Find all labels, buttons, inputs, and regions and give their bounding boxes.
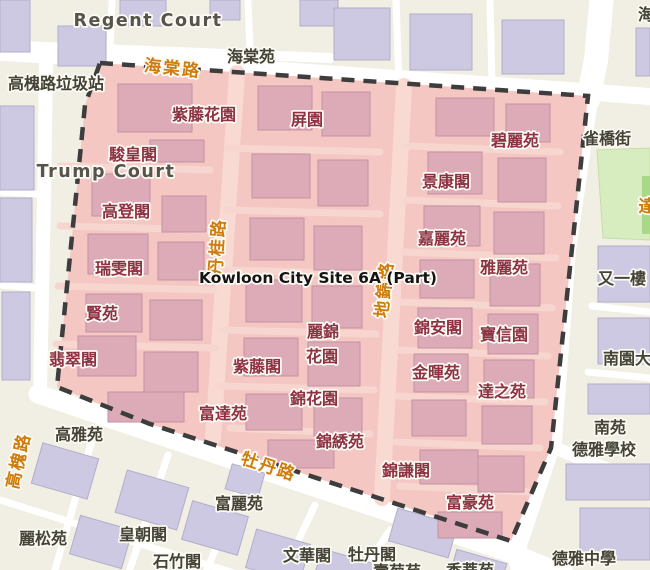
- site-building-label: 雅麗苑: [479, 258, 528, 277]
- label-shek-chuk-court: 石竹閣: [152, 552, 201, 570]
- site-building-label-line2: 花園: [306, 347, 338, 366]
- label-partial-top-right: 海: [638, 5, 650, 24]
- label-regent-court: Regent Court: [74, 11, 223, 31]
- site-building-label: 屏園: [291, 110, 323, 129]
- street-label-tan-kwai-road: 丹桂路: [205, 217, 230, 275]
- label-trump-court: Trump Court: [37, 162, 176, 182]
- site-building-label: 瑞雯閣: [95, 259, 143, 278]
- site-building-label-line1: 麗錦: [307, 322, 339, 341]
- site-building-label: 紫藤花園: [172, 105, 236, 124]
- label-ko-nga-court: 高雅苑: [55, 425, 103, 444]
- site-title: Kowloon City Site 6A (Part): [199, 269, 437, 287]
- site-building-label: 錦花園: [290, 389, 338, 408]
- site-building-label: 賢苑: [86, 304, 118, 323]
- label-wong-chiu-court: 皇朝閣: [119, 525, 167, 544]
- label-nam-yuen: 南苑: [594, 418, 626, 437]
- site-building-label: 碧麗苑: [490, 131, 539, 150]
- site-building-label: 翡翠閣: [49, 350, 97, 369]
- site-building-label: 錦謙閣: [382, 461, 430, 480]
- label-refuse-collection-point: 高槐路垃圾站: [8, 74, 104, 93]
- site-building-label: 錦安閣: [414, 318, 462, 337]
- label-partial-bottom-2: 香蒂苑: [445, 561, 494, 570]
- label-yau-yat-building: 又一樓: [597, 269, 646, 288]
- label-hoi-tong-court: 海棠苑: [227, 47, 275, 66]
- site-building-label: 錦綉苑: [316, 432, 364, 451]
- label-partial-bottom-1: 壽菊苑: [373, 562, 421, 570]
- site-building-label: 達之苑: [478, 382, 526, 401]
- site-building-label: 紫藤閣: [233, 357, 281, 376]
- label-tak-nga-secondary-school: 德雅中學: [552, 549, 616, 568]
- site-building-label: 富豪苑: [446, 493, 494, 512]
- site-building-label: 景康閣: [422, 172, 470, 191]
- site-building-label: 嘉麗苑: [417, 229, 466, 248]
- map-canvas[interactable]: 海棠路 丹桂路 地錦路 牡丹路 高槐路 達 Regent Court 海棠苑 高…: [0, 0, 650, 570]
- label-nam-yuen-mansion-partial: 南園大: [603, 349, 650, 368]
- site-building-label: 高登閣: [102, 202, 150, 221]
- site-building-label: 寶信園: [480, 325, 528, 344]
- label-fu-lai-court: 富麗苑: [215, 494, 263, 513]
- label-tseuk-kiu-street: 雀橋街: [582, 129, 631, 148]
- site-building-label: 駿皇閣: [109, 145, 157, 164]
- street-label-partial-right-edge: 達: [639, 197, 650, 217]
- site-building-label: 金暉苑: [411, 363, 460, 382]
- label-man-wah-court: 文華閣: [283, 546, 331, 565]
- site-building-label: 富達苑: [199, 404, 247, 423]
- label-tak-nga-school: 德雅學校: [572, 440, 637, 459]
- label-lai-chung-court: 麗松苑: [19, 529, 67, 548]
- map-viewport[interactable]: 海棠路 丹桂路 地錦路 牡丹路 高槐路 達 Regent Court 海棠苑 高…: [0, 0, 650, 570]
